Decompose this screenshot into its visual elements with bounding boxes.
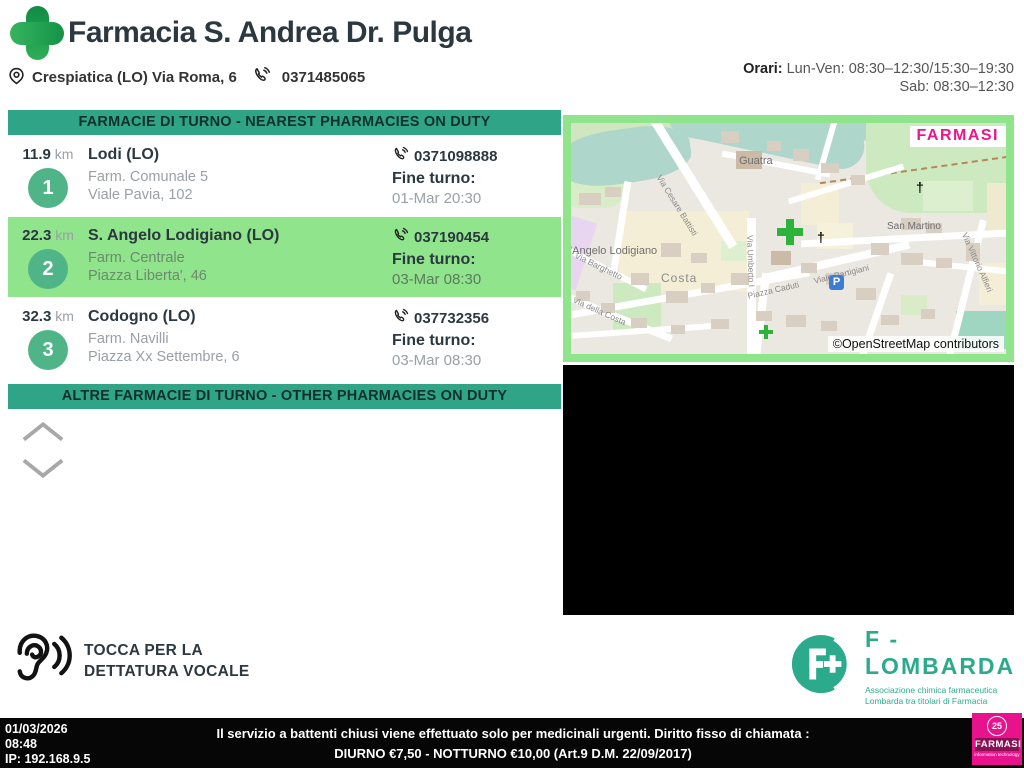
shift-end-time: 01-Mar 20:30 bbox=[392, 190, 557, 207]
church-cross-icon: † bbox=[817, 229, 825, 245]
pharmacy-info: S. Angelo Lodigiano (LO) Farm. Centrale … bbox=[88, 225, 392, 289]
phone-icon bbox=[392, 146, 409, 167]
km-label: km bbox=[55, 146, 74, 162]
farmasi-footer-logo: 25 FARMASI information technology bbox=[972, 713, 1022, 765]
pharmacy-row-1[interactable]: 11.9 km 1 Lodi (LO) Farm. Comunale 5 Via… bbox=[8, 136, 561, 216]
pharmacy-street: Viale Pavia, 102 bbox=[88, 186, 392, 204]
voice-dictation-button[interactable]: TOCCA PER LA DETTATURA VOCALE bbox=[10, 628, 250, 695]
page-title: Farmacia S. Andrea Dr. Pulga bbox=[68, 16, 471, 50]
parking-icon: P bbox=[829, 275, 844, 290]
pharmacy-phone: 0371485065 bbox=[282, 69, 365, 86]
scroll-down-icon[interactable] bbox=[20, 455, 66, 481]
f-lombarda-subtitle: Associazione chimica farmaceutica Lombar… bbox=[865, 685, 1024, 707]
footer-bar: 01/03/2026 08:48 IP: 192.168.9.5 Il serv… bbox=[0, 718, 1024, 768]
time-display: 08:48 bbox=[5, 737, 90, 752]
farmasi-wordmark: FARMASI bbox=[975, 738, 1019, 751]
phone-icon bbox=[252, 66, 271, 89]
pharmacy-row-2-selected[interactable]: 22.3 km 2 S. Angelo Lodigiano (LO) Farm.… bbox=[8, 217, 561, 297]
other-pharmacies-banner: ALTRE FARMACIE DI TURNO - OTHER PHARMACI… bbox=[8, 384, 561, 409]
fine-turno-label: Fine turno: bbox=[392, 170, 557, 188]
scroll-up-icon[interactable] bbox=[20, 419, 66, 445]
f-lombarda-logo: F - LOMBARDA Associazione chimica farmac… bbox=[790, 626, 1024, 707]
pharmacy-address: Crespiatica (LO) Via Roma, 6 bbox=[32, 69, 237, 86]
rank-badge: 3 bbox=[28, 330, 68, 370]
map-label-costa: Costa bbox=[661, 271, 697, 285]
distance-value: 11.9 bbox=[23, 146, 51, 163]
f-lombarda-text: F - LOMBARDA Associazione chimica farmac… bbox=[865, 626, 1024, 707]
pharmacy-cross-logo-icon bbox=[10, 6, 64, 60]
pharmacy-phone-number: 037190454 bbox=[414, 229, 489, 246]
pharmacy-city: Lodi (LO) bbox=[88, 146, 392, 164]
fine-turno-label: Fine turno: bbox=[392, 332, 557, 350]
ip-display: IP: 192.168.9.5 bbox=[5, 752, 90, 767]
hours-label: Orari: bbox=[743, 61, 783, 77]
rank-badge: 2 bbox=[28, 249, 68, 289]
date-display: 01/03/2026 bbox=[5, 722, 90, 737]
inactive-media-panel bbox=[563, 365, 1014, 615]
farmasi-map-watermark: FARMASI bbox=[910, 126, 1007, 147]
address-row: Crespiatica (LO) Via Roma, 6 0371485065 bbox=[8, 66, 365, 89]
kiosk-screen: Farmacia S. Andrea Dr. Pulga Crespiatica… bbox=[0, 0, 1024, 768]
pharmacy-info: Codogno (LO) Farm. Navilli Piazza Xx Set… bbox=[88, 306, 392, 370]
f-lombarda-name: F - LOMBARDA bbox=[865, 626, 1024, 680]
pharmacy-contact: 0371098888 Fine turno: 01-Mar 20:30 bbox=[392, 144, 557, 208]
km-label: km bbox=[55, 308, 74, 324]
shift-end-time: 03-Mar 08:30 bbox=[392, 271, 557, 288]
pharmacy-name: Farm. Navilli bbox=[88, 330, 392, 348]
distance-value: 22.3 bbox=[22, 227, 51, 244]
distance-value: 32.3 bbox=[22, 308, 51, 325]
distance-block: 22.3 km 2 bbox=[8, 225, 88, 289]
distance-block: 32.3 km 3 bbox=[8, 306, 88, 370]
church-cross-icon: † bbox=[916, 179, 924, 195]
pharmacy-contact: 037732356 Fine turno: 03-Mar 08:30 bbox=[392, 306, 557, 370]
pharmacy-name: Farm. Comunale 5 bbox=[88, 168, 392, 186]
phone-icon bbox=[392, 308, 409, 329]
farmasi-tagline: information technology bbox=[972, 752, 1022, 757]
opening-hours: Orari: Lun-Ven: 08:30–12:30/15:30–19:30 … bbox=[743, 60, 1014, 96]
pharmacy-map-marker-icon bbox=[777, 219, 803, 245]
map-panel[interactable]: Guatra San Martino Costa t'Angelo Lodigi… bbox=[563, 115, 1014, 362]
rank-badge: 1 bbox=[28, 168, 68, 208]
map-street-via-umberto: Via Umberto I bbox=[745, 235, 757, 287]
fine-turno-label: Fine turno: bbox=[392, 251, 557, 269]
km-label: km bbox=[55, 227, 74, 243]
osm-attribution: ©OpenStreetMap contributors bbox=[828, 336, 1004, 352]
pharmacy-contact: 037190454 Fine turno: 03-Mar 08:30 bbox=[392, 225, 557, 289]
list-scroll-controls bbox=[20, 419, 561, 481]
pharmacy-street: Piazza Liberta', 46 bbox=[88, 267, 392, 285]
map-label-guatra: Guatra bbox=[739, 155, 773, 167]
distance-block: 11.9 km 1 bbox=[8, 144, 88, 208]
location-pin-icon bbox=[8, 67, 25, 89]
nearest-pharmacies-banner: FARMACIE DI TURNO - NEAREST PHARMACIES O… bbox=[8, 110, 561, 135]
shift-end-time: 03-Mar 08:30 bbox=[392, 352, 557, 369]
farmasi-25-badge: 25 bbox=[987, 716, 1007, 736]
pharmacy-row-3[interactable]: 32.3 km 3 Codogno (LO) Farm. Navilli Pia… bbox=[8, 298, 561, 378]
pharmacy-city: Codogno (LO) bbox=[88, 308, 392, 326]
pharmacy-info: Lodi (LO) Farm. Comunale 5 Viale Pavia, … bbox=[88, 144, 392, 208]
service-notice: Il servizio a battenti chiusi viene effe… bbox=[202, 724, 824, 764]
pharmacy-city: S. Angelo Lodigiano (LO) bbox=[88, 227, 392, 245]
map-label-san-martino: San Martino bbox=[887, 221, 941, 232]
pharmacy-map-marker-small-icon bbox=[759, 325, 773, 339]
phone-icon bbox=[392, 227, 409, 248]
openstreetmap-view[interactable]: Guatra San Martino Costa t'Angelo Lodigi… bbox=[571, 123, 1006, 354]
ear-listening-icon bbox=[10, 628, 72, 695]
pharmacy-name: Farm. Centrale bbox=[88, 249, 392, 267]
hours-saturday: Sab: 08:30–12:30 bbox=[743, 78, 1014, 96]
pharmacy-phone-number: 0371098888 bbox=[414, 148, 497, 165]
system-info: 01/03/2026 08:48 IP: 192.168.9.5 bbox=[5, 722, 90, 766]
pharmacy-street: Piazza Xx Settembre, 6 bbox=[88, 348, 392, 366]
hours-weekdays: Lun-Ven: 08:30–12:30/15:30–19:30 bbox=[783, 61, 1014, 77]
voice-dictation-label: TOCCA PER LA DETTATURA VOCALE bbox=[84, 641, 250, 681]
pharmacy-phone-number: 037732356 bbox=[414, 310, 489, 327]
f-lombarda-mark-icon bbox=[790, 633, 852, 700]
pharmacies-on-duty-list: FARMACIE DI TURNO - NEAREST PHARMACIES O… bbox=[8, 110, 561, 491]
